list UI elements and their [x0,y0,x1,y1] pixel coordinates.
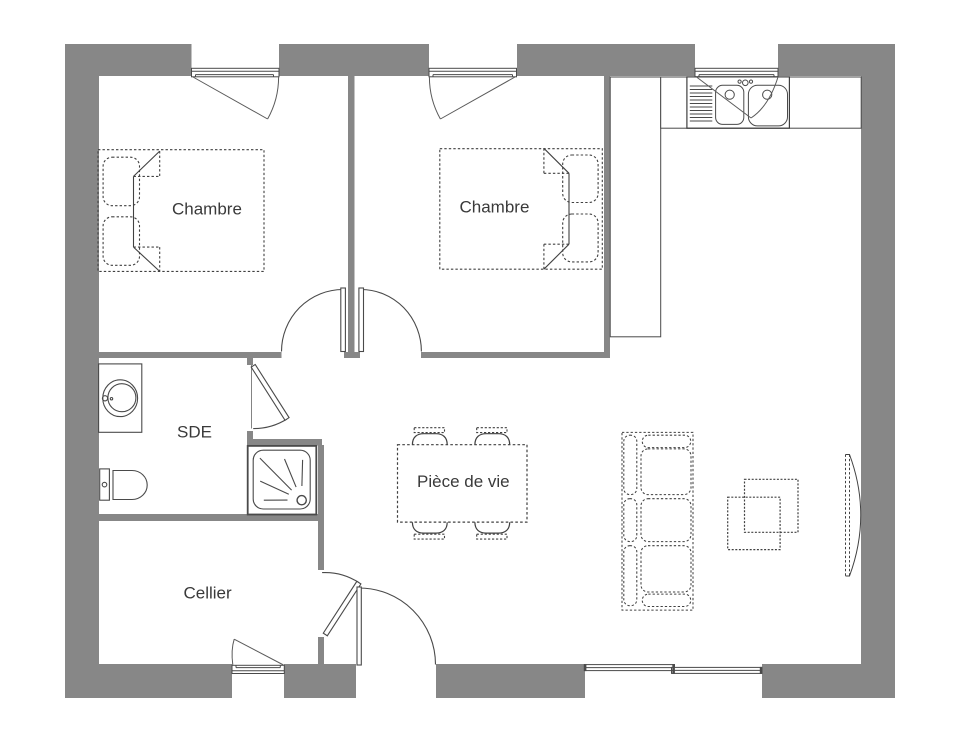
svg-text:Chambre: Chambre [460,197,530,216]
svg-text:Cellier: Cellier [184,583,233,602]
svg-text:Chambre: Chambre [172,200,242,219]
svg-text:SDE: SDE [177,423,212,442]
svg-text:Pièce de vie: Pièce de vie [417,472,510,491]
